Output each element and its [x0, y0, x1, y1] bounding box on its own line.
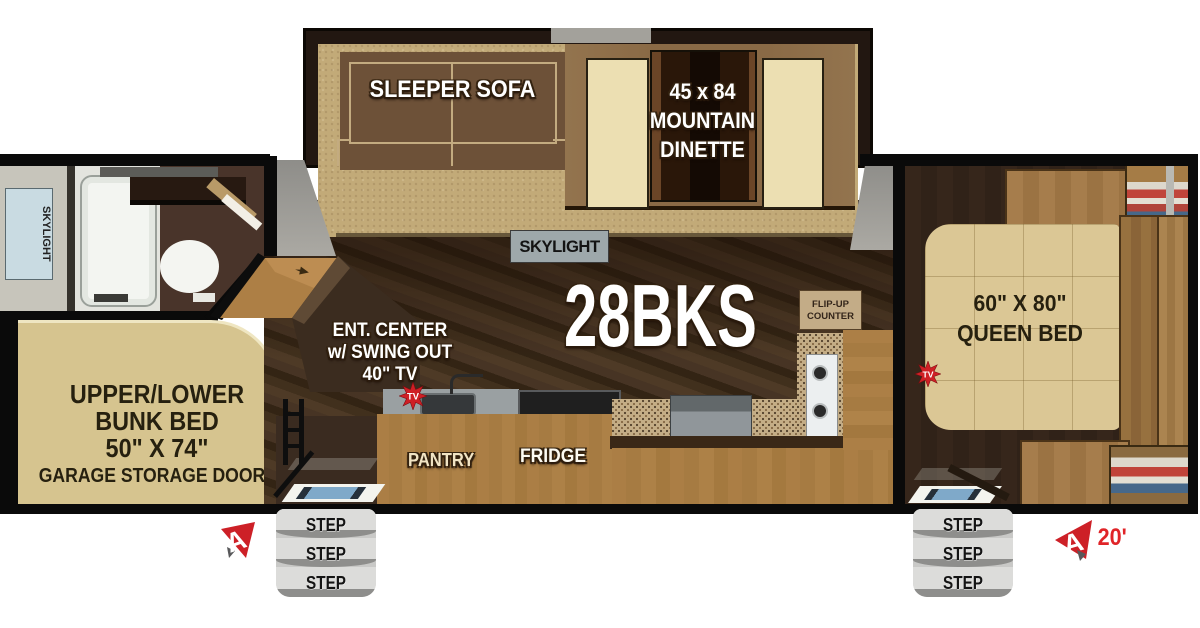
svg-text:TV: TV: [407, 392, 420, 402]
svg-text:TV: TV: [922, 369, 933, 379]
